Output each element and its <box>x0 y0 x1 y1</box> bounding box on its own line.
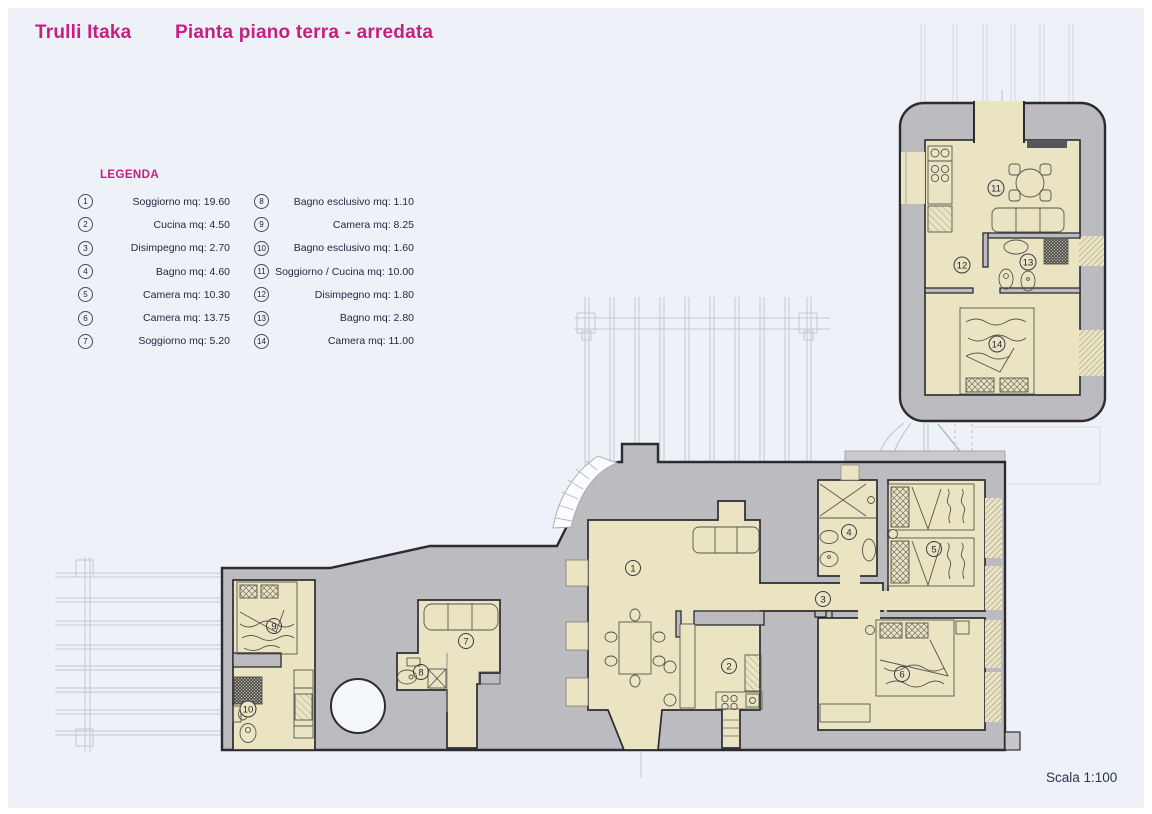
svg-text:2: 2 <box>726 662 731 673</box>
legend-number: 14 <box>254 334 269 349</box>
annex-unit <box>900 101 1105 421</box>
legend-number: 3 <box>78 241 93 256</box>
svg-text:4: 4 <box>846 528 851 539</box>
svg-text:8: 8 <box>418 668 423 679</box>
door-gap <box>840 574 860 584</box>
legend-number: 1 <box>78 194 93 209</box>
legend-number: 11 <box>254 264 269 279</box>
legend-number: 9 <box>254 217 269 232</box>
legend-column-1: 1Soggiorno mq: 19.60 2Cucina mq: 4.50 3D… <box>78 190 230 353</box>
legend-label: Bagno mq: 4.60 <box>93 266 230 278</box>
tv-shelf <box>1027 140 1067 148</box>
svg-text:9: 9 <box>271 622 276 633</box>
svg-text:11: 11 <box>991 184 1001 195</box>
legend-item: 7Soggiorno mq: 5.20 <box>78 330 230 353</box>
legend-item: 3Disimpegno mq: 2.70 <box>78 237 230 260</box>
legend-number: 6 <box>78 311 93 326</box>
legend-label: Disimpegno mq: 1.80 <box>269 289 414 301</box>
svg-text:1: 1 <box>630 564 635 575</box>
pergola-left <box>55 557 227 752</box>
legend-item: 11Soggiorno / Cucina mq: 10.00 <box>254 260 414 283</box>
wall-niches <box>566 560 588 706</box>
legend-item: 6Camera mq: 13.75 <box>78 306 230 329</box>
legend-number: 4 <box>78 264 93 279</box>
interior-wall <box>233 653 281 667</box>
legend-heading: LEGENDA <box>100 169 159 181</box>
page-title: Trulli Itaka <box>35 22 131 44</box>
legend-item: 12Disimpegno mq: 1.80 <box>254 283 414 306</box>
legend-item: 8Bagno esclusivo mq: 1.10 <box>254 190 414 213</box>
legend-label: Camera mq: 11.00 <box>269 335 414 347</box>
legend-column-2: 8Bagno esclusivo mq: 1.10 9Camera mq: 8.… <box>254 190 414 353</box>
drawing-page: 1 2 3 4 5 6 7 8 9 10 11 12 13 14 Trulli … <box>0 0 1152 814</box>
window <box>841 465 859 480</box>
legend-label: Soggiorno mq: 5.20 <box>93 335 230 347</box>
legend-item: 9Camera mq: 8.25 <box>254 213 414 236</box>
kitchen-peninsula <box>680 624 695 708</box>
door-gap <box>882 591 890 610</box>
legend-number: 2 <box>78 217 93 232</box>
main-unit <box>222 444 1020 778</box>
legend-label: Disimpegno mq: 2.70 <box>93 242 230 254</box>
legend-label: Soggiorno / Cucina mq: 10.00 <box>269 266 414 278</box>
svg-text:14: 14 <box>992 340 1003 351</box>
svg-text:10: 10 <box>243 705 254 716</box>
legend-item: 5Camera mq: 10.30 <box>78 283 230 306</box>
floor-plan-svg: 1 2 3 4 5 6 7 8 9 10 11 12 13 14 <box>0 0 1152 814</box>
scale-label: Scala 1:100 <box>1046 770 1117 785</box>
door-gap <box>858 609 880 620</box>
legend-item: 1Soggiorno mq: 19.60 <box>78 190 230 213</box>
legend-item: 14Camera mq: 11.00 <box>254 330 414 353</box>
exterior-step <box>1005 732 1020 750</box>
svg-text:6: 6 <box>899 670 904 681</box>
legend-number: 13 <box>254 311 269 326</box>
svg-text:12: 12 <box>957 261 968 272</box>
annex-entrance <box>974 101 1024 143</box>
legend-label: Camera mq: 8.25 <box>269 219 414 231</box>
legend-number: 12 <box>254 287 269 302</box>
legend-label: Bagno esclusivo mq: 1.60 <box>269 242 414 254</box>
window <box>901 152 925 204</box>
circular-room <box>331 679 385 733</box>
legend-label: Camera mq: 10.30 <box>93 289 230 301</box>
drawing-title: Pianta piano terra - arredata <box>175 22 433 44</box>
legend-item: 10Bagno esclusivo mq: 1.60 <box>254 237 414 260</box>
legend-number: 10 <box>254 241 269 256</box>
legend-item: 13Bagno mq: 2.80 <box>254 306 414 329</box>
legend-item: 4Bagno mq: 4.60 <box>78 260 230 283</box>
legend-label: Bagno esclusivo mq: 1.10 <box>269 196 414 208</box>
legend-number: 7 <box>78 334 93 349</box>
svg-text:3: 3 <box>820 595 825 606</box>
legend-label: Soggiorno mq: 19.60 <box>93 196 230 208</box>
legend-label: Bagno mq: 2.80 <box>269 312 414 324</box>
legend-label: Cucina mq: 4.50 <box>93 219 230 231</box>
room-label-10: 10 <box>240 701 256 717</box>
legend-label: Camera mq: 13.75 <box>93 312 230 324</box>
legend-number: 5 <box>78 287 93 302</box>
legend-item: 2Cucina mq: 4.50 <box>78 213 230 236</box>
side-table <box>889 530 898 539</box>
legend-number: 8 <box>254 194 269 209</box>
svg-text:7: 7 <box>463 637 468 648</box>
svg-text:13: 13 <box>1023 258 1034 269</box>
svg-text:5: 5 <box>931 545 936 556</box>
